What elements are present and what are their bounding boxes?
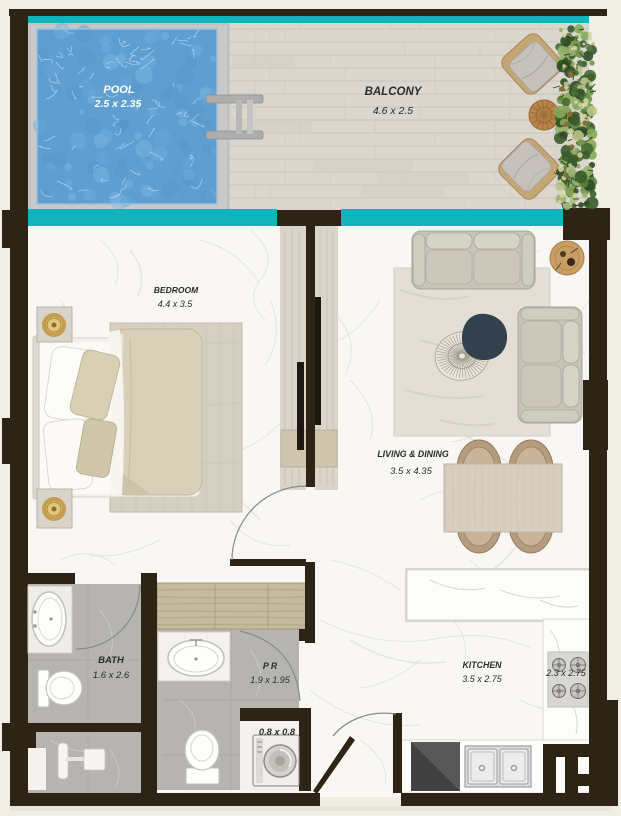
svg-text:1.6 x 2.6: 1.6 x 2.6: [93, 670, 130, 681]
svg-text:LIVING & DINING: LIVING & DINING: [377, 449, 449, 459]
svg-text:POOL: POOL: [103, 84, 134, 96]
svg-text:3.5 x 4.35: 3.5 x 4.35: [390, 466, 432, 477]
svg-text:BATH: BATH: [98, 655, 125, 666]
svg-text:3.5 x 2.75: 3.5 x 2.75: [462, 674, 503, 684]
svg-text:2.3 x 2.75: 2.3 x 2.75: [545, 668, 587, 678]
svg-text:2.5 x 2.35: 2.5 x 2.35: [94, 98, 142, 110]
svg-text:BEDROOM: BEDROOM: [154, 285, 199, 295]
svg-text:1.9 x 1.95: 1.9 x 1.95: [250, 675, 291, 685]
svg-text:4.6 x 2.5: 4.6 x 2.5: [373, 105, 413, 117]
svg-text:KITCHEN: KITCHEN: [462, 660, 502, 670]
svg-text:P R: P R: [263, 661, 278, 671]
svg-text:4.4 x 3.5: 4.4 x 3.5: [158, 299, 194, 309]
svg-text:0.8 x 0.8: 0.8 x 0.8: [259, 727, 296, 737]
svg-text:BALCONY: BALCONY: [365, 86, 423, 98]
